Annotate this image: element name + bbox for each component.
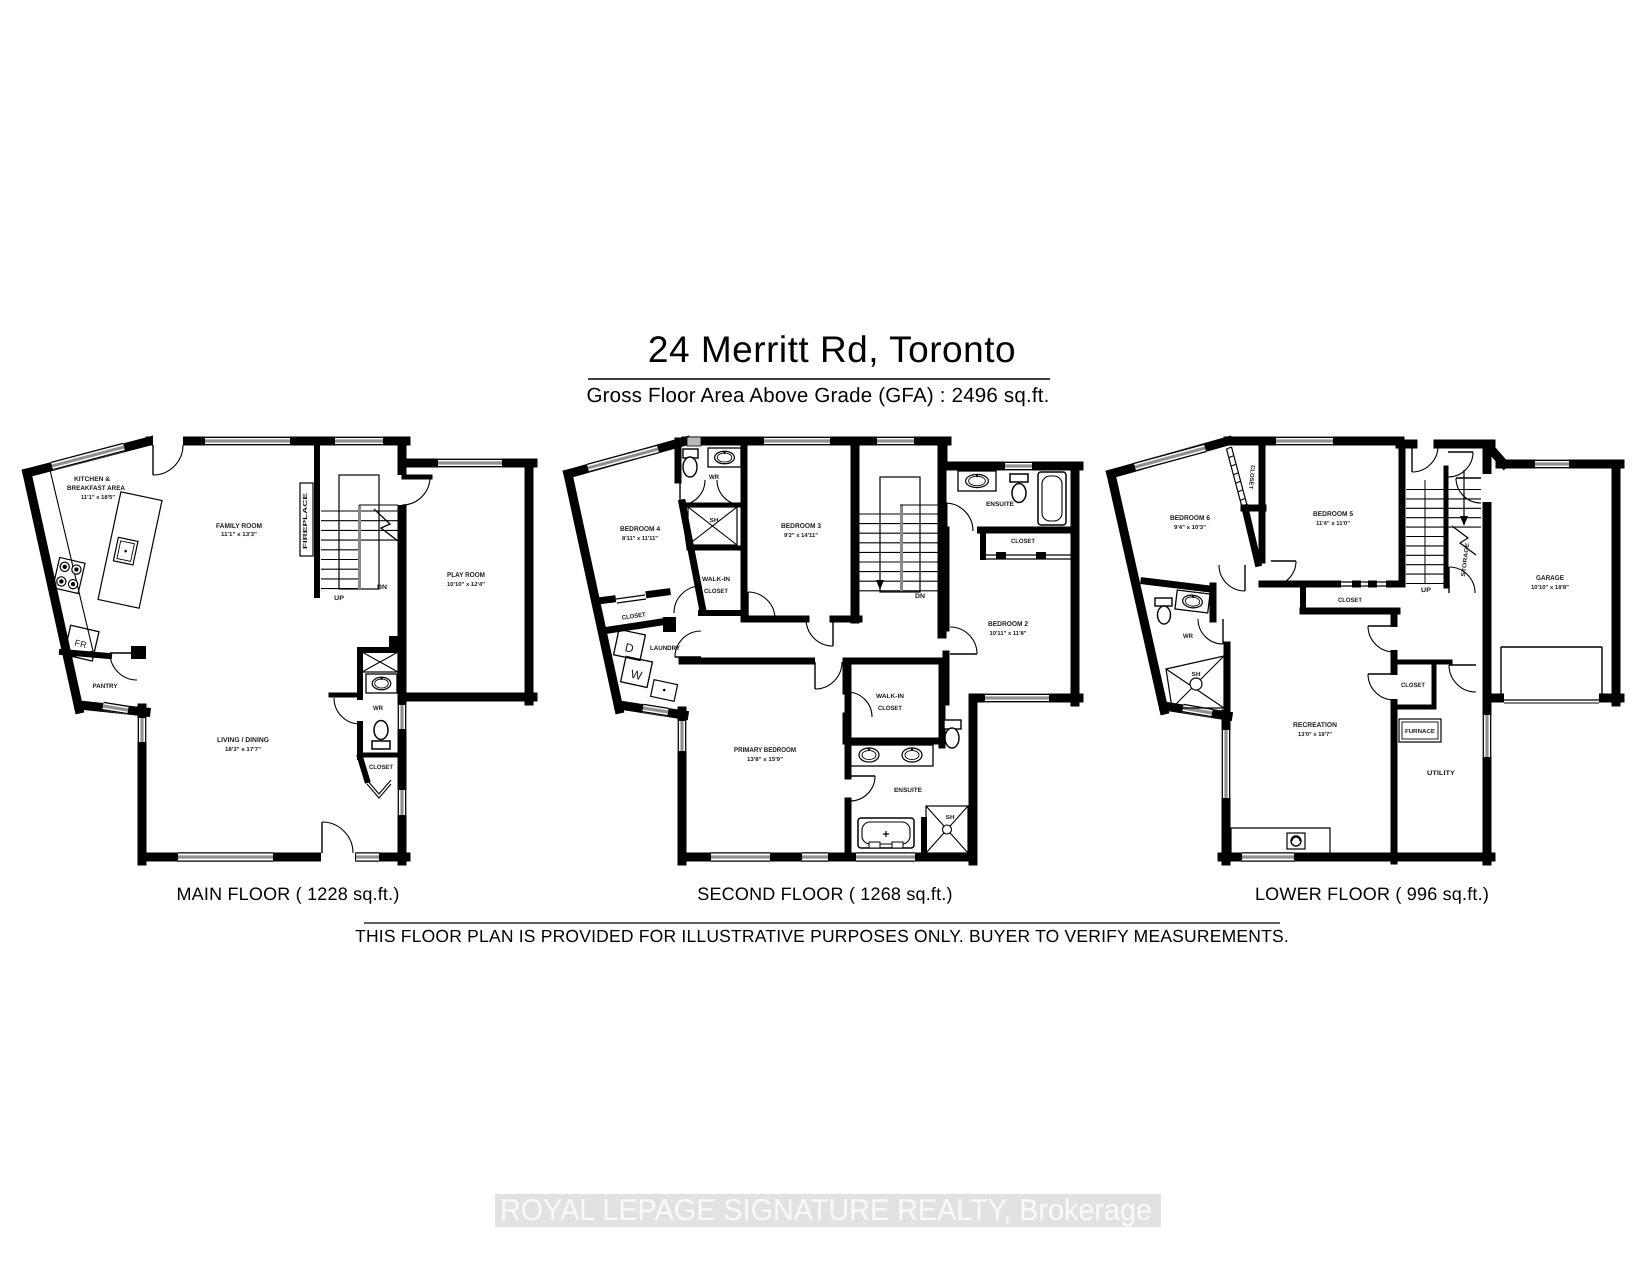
svg-text:SH: SH (1192, 671, 1201, 678)
svg-text:BEDROOM 5: BEDROOM 5 (1313, 511, 1353, 518)
svg-text:ENSUITE: ENSUITE (986, 501, 1015, 508)
svg-text:BEDROOM 2: BEDROOM 2 (988, 621, 1028, 628)
svg-text:ENSUITE: ENSUITE (894, 787, 923, 794)
svg-text:FIREPLACE: FIREPLACE (302, 493, 309, 549)
svg-text:RECREATION: RECREATION (1293, 722, 1337, 729)
svg-text:9'2" x 14'11": 9'2" x 14'11" (784, 532, 818, 539)
svg-text:WALK-IN: WALK-IN (876, 693, 905, 700)
svg-text:Gross Floor Area Above Grade: Gross Floor Area Above Grade (GFA) : 249… (586, 384, 1049, 407)
svg-text:PANTRY: PANTRY (93, 683, 119, 690)
svg-text:11'4" x 11'0": 11'4" x 11'0" (1316, 520, 1350, 527)
svg-text:9'4" x 10'3": 9'4" x 10'3" (1174, 524, 1206, 531)
svg-text:UP: UP (334, 595, 345, 602)
svg-text:BREAKFAST AREA: BREAKFAST AREA (67, 485, 125, 492)
svg-text:PLAY ROOM: PLAY ROOM (447, 572, 485, 579)
svg-text:UTILITY: UTILITY (1427, 770, 1456, 777)
svg-text:UP: UP (1421, 587, 1432, 594)
svg-text:BEDROOM 4: BEDROOM 4 (620, 526, 660, 533)
svg-text:LOWER FLOOR ( 996 sq.ft.): LOWER FLOOR ( 996 sq.ft.) (1255, 884, 1489, 904)
svg-text:THIS FLOOR PLAN IS PROVIDED FO: THIS FLOOR PLAN IS PROVIDED FOR ILLUSTRA… (355, 926, 1289, 946)
svg-text:CLOSET: CLOSET (1011, 538, 1035, 545)
svg-text:BEDROOM 6: BEDROOM 6 (1170, 515, 1210, 522)
svg-text:10'10" x 12'4": 10'10" x 12'4" (447, 581, 485, 588)
svg-text:13'0" x 19'7": 13'0" x 19'7" (1298, 731, 1332, 738)
svg-text:WR: WR (709, 474, 719, 481)
svg-text:CLOSET: CLOSET (1338, 597, 1362, 604)
svg-text:DN: DN (915, 593, 925, 600)
svg-text:BEDROOM 3: BEDROOM 3 (781, 523, 821, 530)
svg-text:11'1" x 18'5": 11'1" x 18'5" (81, 494, 115, 501)
svg-text:18'3" x 17'7": 18'3" x 17'7" (225, 746, 261, 753)
svg-text:DN: DN (377, 584, 387, 591)
svg-text:GARAGE: GARAGE (1536, 575, 1564, 582)
svg-text:PRIMARY BEDROOM: PRIMARY BEDROOM (734, 747, 796, 754)
svg-text:10'10" x 18'8": 10'10" x 18'8" (1531, 584, 1569, 591)
svg-text:WR: WR (373, 705, 383, 712)
svg-text:FURNACE: FURNACE (1405, 728, 1435, 735)
svg-text:LIVING / DINING: LIVING / DINING (217, 736, 270, 744)
svg-text:WR: WR (1183, 633, 1193, 640)
svg-text:CLOSET: CLOSET (369, 764, 393, 771)
svg-text:ROYAL LEPAGE SIGNATURE REALTY,: ROYAL LEPAGE SIGNATURE REALTY, Brokerage (500, 1194, 1152, 1227)
svg-text:11'1" x 13'3": 11'1" x 13'3" (221, 531, 257, 538)
svg-text:MAIN FLOOR ( 1228 sq.ft.): MAIN FLOOR ( 1228 sq.ft.) (176, 884, 399, 904)
svg-text:WALK-IN: WALK-IN (702, 576, 731, 583)
svg-text:SH: SH (710, 517, 719, 524)
svg-text:8'11" x 11'11": 8'11" x 11'11" (622, 535, 658, 542)
svg-text:SECOND FLOOR ( 1268 sq.ft.): SECOND FLOOR ( 1268 sq.ft.) (697, 884, 952, 904)
svg-text:KITCHEN &: KITCHEN & (74, 476, 110, 483)
svg-text:13'8" x 15'9": 13'8" x 15'9" (747, 756, 783, 763)
svg-text:CLOSET: CLOSET (1401, 682, 1425, 689)
svg-text:CLOSET: CLOSET (704, 588, 728, 595)
svg-text:10'11" x 11'8": 10'11" x 11'8" (990, 630, 1027, 637)
svg-text:SH: SH (946, 814, 955, 821)
svg-text:CLOSET: CLOSET (878, 705, 902, 712)
svg-text:24 Merritt Rd, Toronto: 24 Merritt Rd, Toronto (648, 329, 1016, 370)
svg-text:FAMILY ROOM: FAMILY ROOM (216, 523, 262, 530)
